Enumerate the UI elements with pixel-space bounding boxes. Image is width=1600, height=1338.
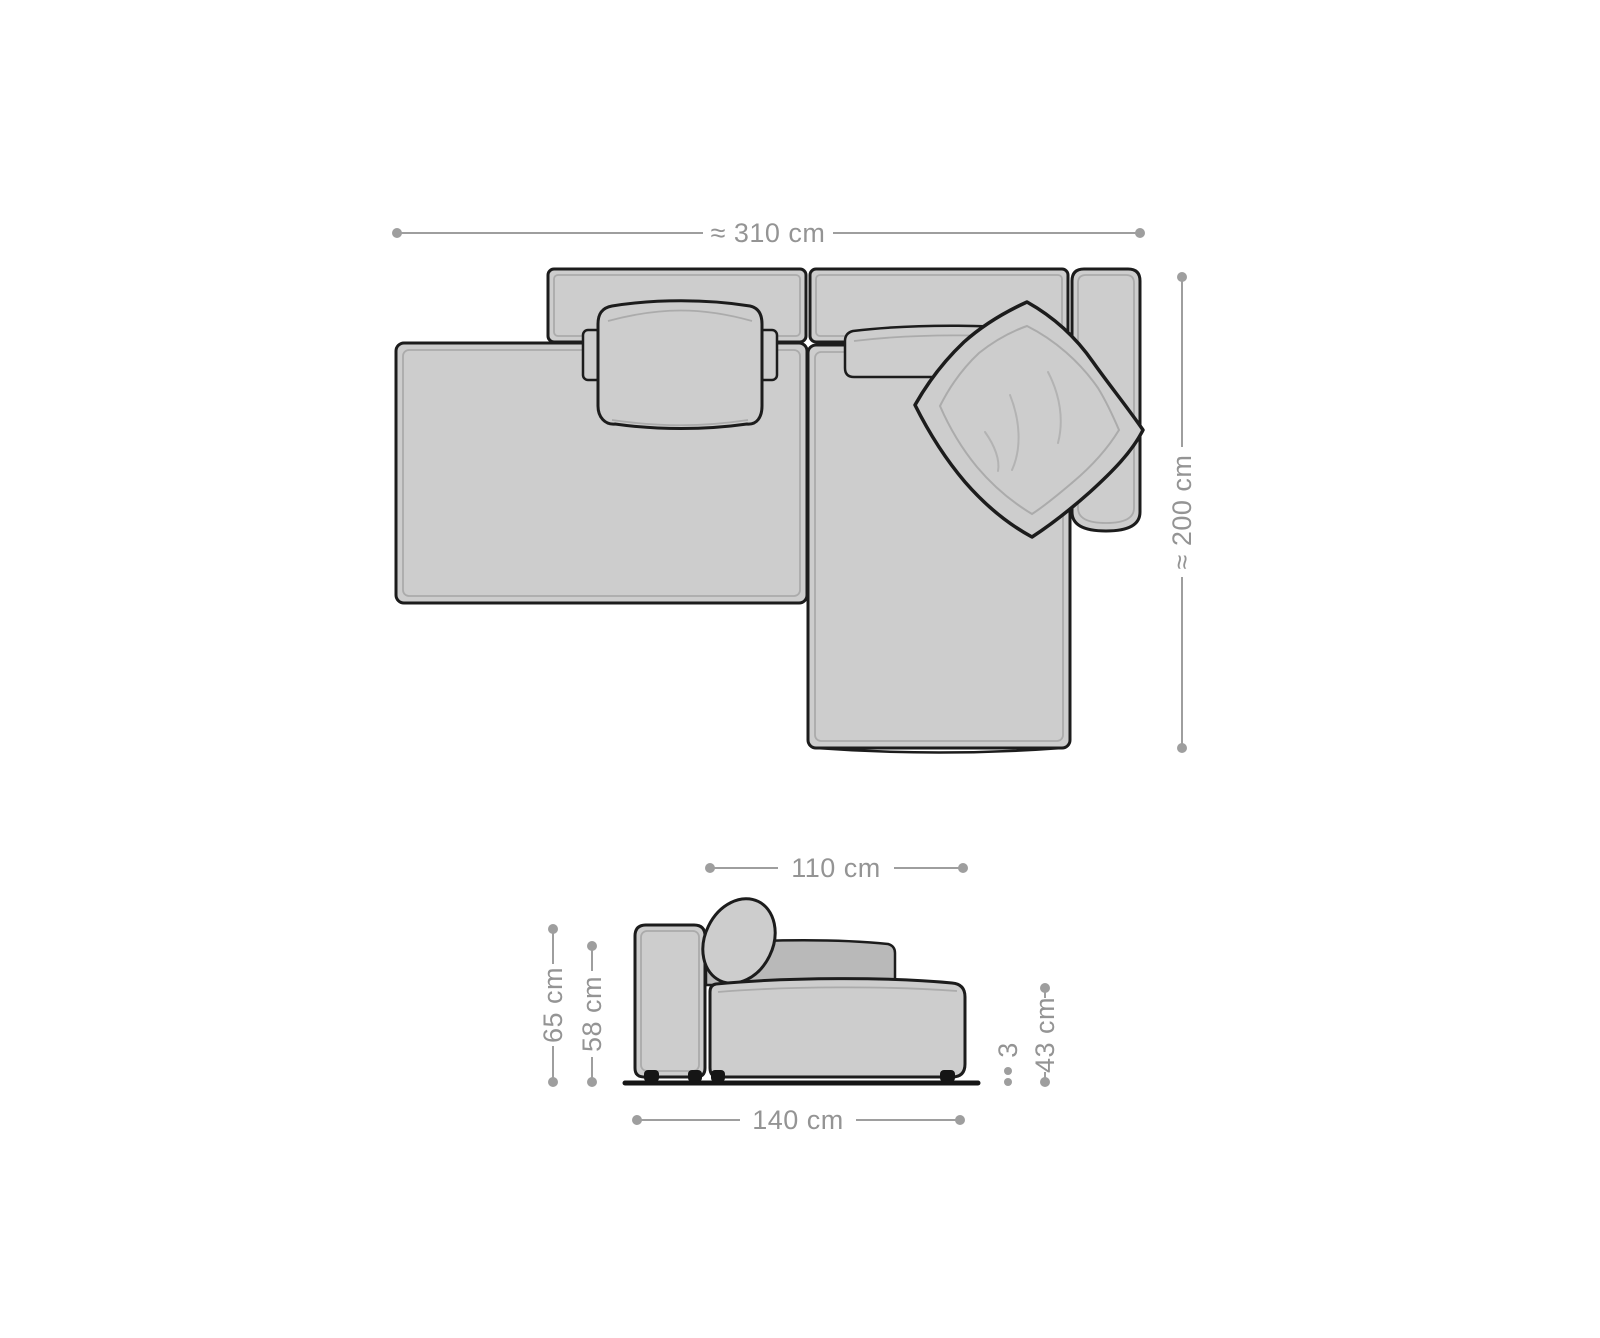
dimension-label-total-depth-side: 140 cm: [752, 1105, 844, 1135]
dimension-endpoint-dot: [1004, 1067, 1012, 1075]
dimension-endpoint-dot: [955, 1115, 965, 1125]
dimension-endpoint-dot: [705, 863, 715, 873]
side-view: 110 cm 65 cm 58 cm 3: [538, 853, 1060, 1135]
dimension-label-total-width: ≈ 310 cm: [711, 218, 826, 248]
dimension-label-back-height: 58 cm: [577, 976, 607, 1052]
armrest-front: [635, 925, 705, 1077]
dimension-label-total-height: 65 cm: [538, 967, 568, 1043]
dimension-label-foot-height: 3: [993, 1042, 1023, 1058]
dimension-endpoint-dot: [632, 1115, 642, 1125]
dimension-endpoint-dot: [1040, 983, 1050, 993]
dimension-back-height: 58 cm: [577, 941, 607, 1087]
dimension-total-height: 65 cm: [538, 924, 568, 1087]
dimension-endpoint-dot: [587, 941, 597, 951]
top-view: ≈ 310 cm ≈ 200 cm: [392, 218, 1197, 753]
dimension-label-seat-depth: 110 cm: [791, 853, 881, 883]
dimension-endpoint-dot: [1040, 1077, 1050, 1087]
dimension-endpoint-dot: [1177, 272, 1187, 282]
diagram-canvas: ≈ 310 cm ≈ 200 cm: [0, 0, 1600, 1333]
dimension-endpoint-dot: [587, 1077, 597, 1087]
sofa-foot: [940, 1070, 955, 1082]
sofa-foot: [688, 1070, 702, 1082]
dimension-foot-height: 3: [993, 1042, 1023, 1086]
dimension-seat-height: 43 cm: [1030, 983, 1060, 1087]
dimension-label-seat-height: 43 cm: [1030, 997, 1060, 1073]
dimension-total-depth-side: 140 cm: [632, 1105, 965, 1135]
dimension-endpoint-dot: [1135, 228, 1145, 238]
dimension-endpoint-dot: [1177, 743, 1187, 753]
dimension-endpoint-dot: [958, 863, 968, 873]
dimension-total-depth-top: ≈ 200 cm: [1167, 272, 1197, 753]
sofa-foot: [711, 1070, 725, 1082]
dimension-total-width: ≈ 310 cm: [392, 218, 1145, 248]
sofa-foot: [644, 1070, 659, 1082]
dimension-seat-depth: 110 cm: [705, 853, 968, 883]
dimension-label-total-depth: ≈ 200 cm: [1167, 455, 1197, 570]
dimension-endpoint-dot: [392, 228, 402, 238]
seat-base: [710, 979, 965, 1077]
dimension-endpoint-dot: [548, 924, 558, 934]
sofa-dimension-diagram: ≈ 310 cm ≈ 200 cm: [0, 0, 1600, 1333]
dimension-endpoint-dot: [548, 1077, 558, 1087]
headrest-cushion: [598, 301, 762, 429]
dimension-endpoint-dot: [1004, 1078, 1012, 1086]
